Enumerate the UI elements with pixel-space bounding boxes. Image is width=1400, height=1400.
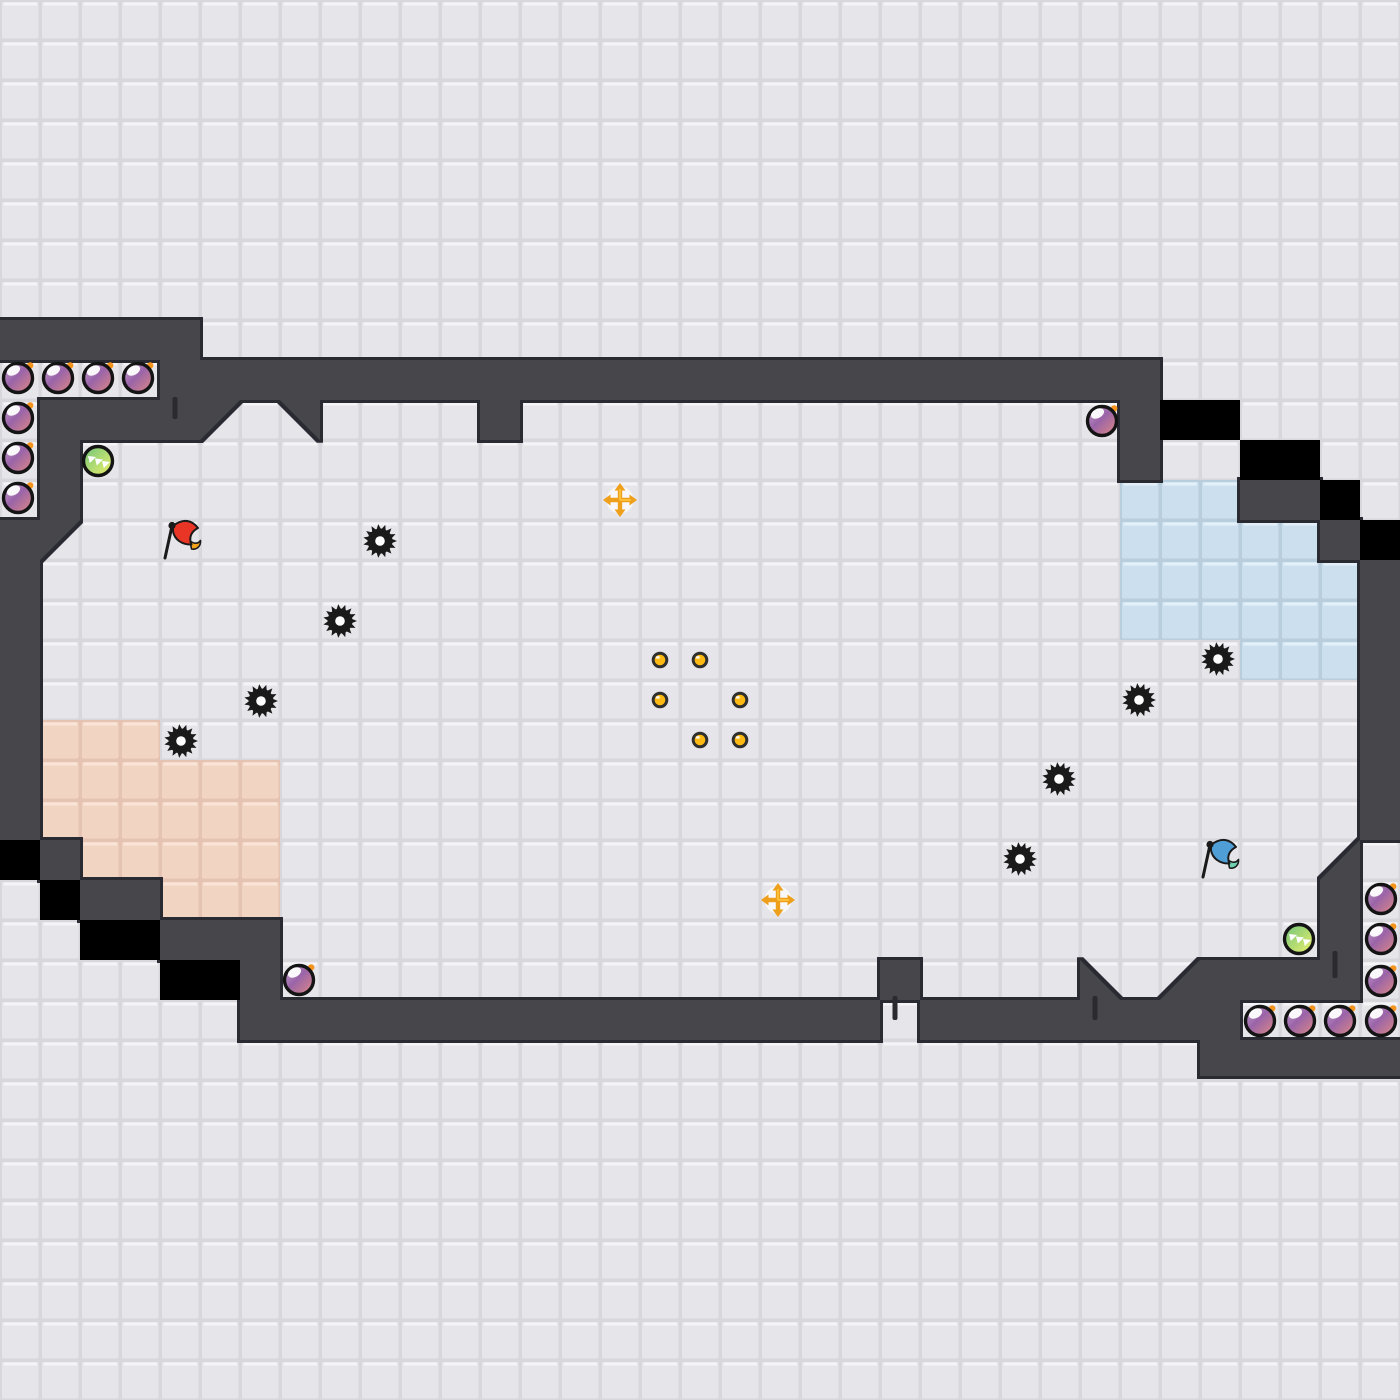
void-cell [1240, 440, 1280, 480]
background-grid [0, 0, 1400, 1400]
wall-block [920, 1000, 1120, 1040]
void-cell [80, 920, 120, 960]
pink-tile [80, 840, 120, 880]
pink-tile [240, 800, 280, 840]
pink-tile [80, 800, 120, 840]
wall-block [240, 1000, 880, 1040]
void-cell [1280, 440, 1320, 480]
wall-block [480, 400, 520, 440]
blue-tile [1120, 560, 1160, 600]
blue-tile [1240, 600, 1280, 640]
bomb[interactable] [1246, 1005, 1276, 1035]
void-cell [160, 960, 200, 1000]
blue-tile [1160, 600, 1200, 640]
pink-tile [40, 720, 80, 760]
door-bar[interactable] [173, 397, 178, 419]
blue-tile [1280, 600, 1320, 640]
wall-block [160, 920, 280, 960]
wall-block [1320, 520, 1360, 560]
bomb[interactable] [1367, 1005, 1397, 1035]
bomb[interactable] [1367, 883, 1397, 913]
pink-tile [200, 840, 240, 880]
gold-coin[interactable] [733, 693, 747, 707]
blue-tile [1200, 520, 1240, 560]
bomb[interactable] [4, 442, 34, 472]
void-cell [1360, 520, 1400, 560]
bomb[interactable] [84, 362, 114, 392]
void-cell [1200, 400, 1240, 440]
pink-tile [40, 760, 80, 800]
blue-tile [1120, 480, 1160, 520]
pink-tile [80, 760, 120, 800]
bomb[interactable] [1326, 1005, 1356, 1035]
bomb[interactable] [1367, 965, 1397, 995]
gold-coin[interactable] [653, 653, 667, 667]
blue-tile [1200, 480, 1240, 520]
blue-tile [1320, 560, 1360, 600]
bomb[interactable] [285, 964, 315, 994]
pink-tile [240, 840, 280, 880]
door-bar[interactable] [1093, 996, 1098, 1020]
bomb[interactable] [1286, 1005, 1316, 1035]
blue-tile [1120, 520, 1160, 560]
pink-tile [120, 840, 160, 880]
bomb[interactable] [4, 482, 34, 512]
void-cell [200, 960, 240, 1000]
wall-block [160, 360, 200, 400]
pink-tile [200, 760, 240, 800]
pink-tile [160, 840, 200, 880]
wall-block [200, 360, 1160, 400]
pink-tile [120, 800, 160, 840]
gold-coin[interactable] [733, 733, 747, 747]
pink-tile [80, 720, 120, 760]
gold-coin[interactable] [693, 733, 707, 747]
wall-block [80, 880, 160, 920]
bomb[interactable] [44, 362, 74, 392]
level-canvas[interactable] [0, 0, 1400, 1400]
wall-block [1200, 1040, 1400, 1076]
green-orb[interactable] [84, 447, 113, 476]
blue-tile [1280, 640, 1320, 680]
bomb[interactable] [4, 362, 34, 392]
bomb[interactable] [124, 362, 154, 392]
wall-block [1120, 1000, 1240, 1040]
void-cell [1320, 480, 1360, 520]
pink-tile [240, 880, 280, 920]
level-map[interactable] [0, 0, 1400, 1400]
void-cell [120, 920, 160, 960]
wall-block [880, 960, 920, 1000]
pink-tile [160, 800, 200, 840]
blue-tile [1240, 520, 1280, 560]
blue-tile [1120, 600, 1160, 640]
gold-coin[interactable] [693, 653, 707, 667]
pink-tile [40, 800, 80, 840]
door-bar[interactable] [893, 996, 898, 1020]
void-cell [1160, 400, 1200, 440]
blue-tile [1320, 600, 1360, 640]
blue-tile [1160, 480, 1200, 520]
wall-block [240, 960, 280, 1000]
wall-block [1120, 400, 1160, 480]
bomb[interactable] [1367, 923, 1397, 953]
blue-tile [1320, 640, 1360, 680]
void-cell [0, 840, 40, 880]
wall-block [1360, 560, 1400, 840]
pink-tile [200, 880, 240, 920]
pink-tile [160, 760, 200, 800]
gold-coin[interactable] [653, 693, 667, 707]
wall-block [40, 440, 80, 520]
pink-tile [120, 720, 160, 760]
bomb[interactable] [4, 402, 34, 432]
door-bar[interactable] [1333, 951, 1338, 978]
green-orb[interactable] [1285, 925, 1314, 954]
wall-block [40, 840, 80, 880]
pink-tile [200, 800, 240, 840]
pink-tile [160, 880, 200, 920]
bomb[interactable] [1088, 405, 1118, 435]
blue-tile [1160, 520, 1200, 560]
blue-tile [1200, 560, 1240, 600]
blue-tile [1280, 560, 1320, 600]
blue-tile [1240, 640, 1280, 680]
wall-block [0, 320, 200, 360]
blue-tile [1160, 560, 1200, 600]
void-cell [40, 880, 80, 920]
blue-tile [1280, 520, 1320, 560]
blue-tile [1240, 560, 1280, 600]
blue-tile [1200, 600, 1240, 640]
pink-tile [120, 760, 160, 800]
pink-tile [240, 760, 280, 800]
wall-block [1240, 480, 1320, 520]
